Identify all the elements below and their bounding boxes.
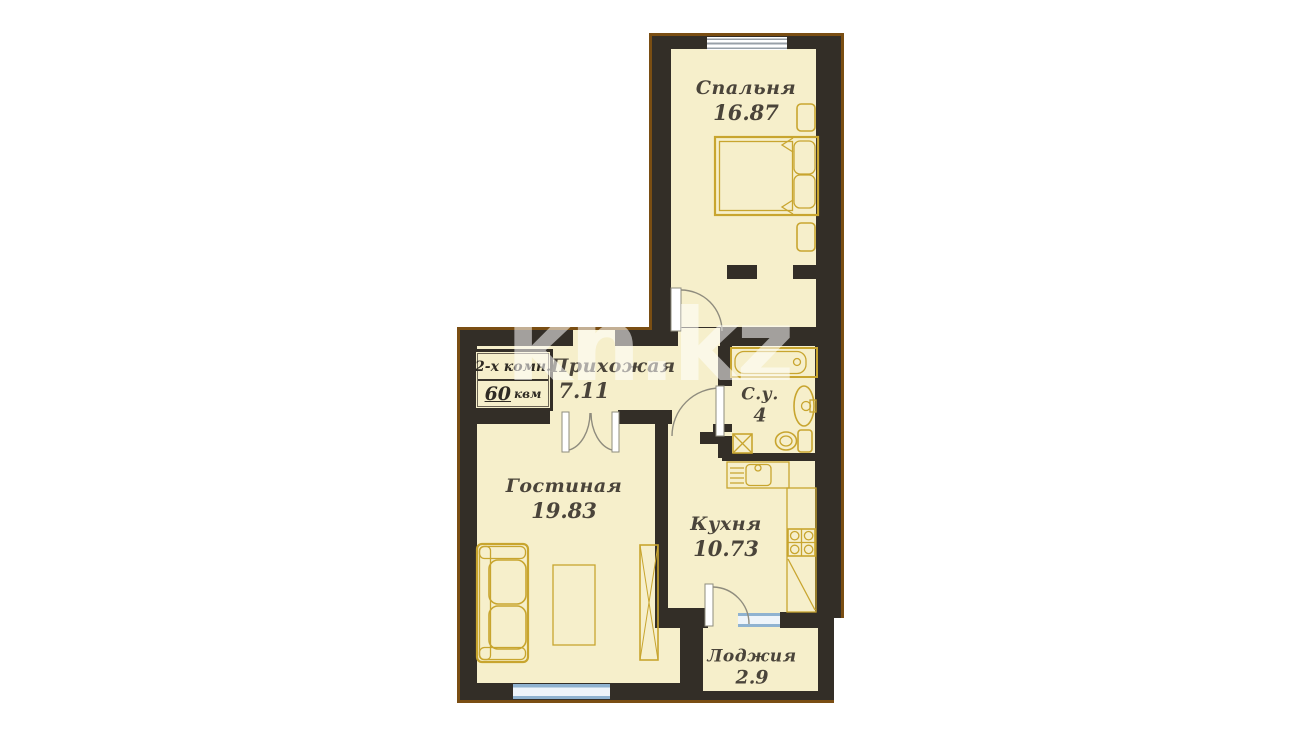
nightstand-bottom bbox=[797, 223, 815, 251]
kitchen-dish-rack bbox=[730, 468, 744, 483]
loggia-name: Лоджия bbox=[707, 646, 796, 666]
wardrobe-cross bbox=[640, 545, 658, 660]
french-door-arc-right bbox=[591, 413, 612, 450]
apartment-area-unit: квм bbox=[514, 387, 541, 401]
bathroom-door-leaf bbox=[716, 386, 724, 436]
bed-pillow-bottom bbox=[794, 175, 815, 208]
apartment-area-label: 60 квм bbox=[478, 381, 548, 406]
blanket-fold-bottom bbox=[782, 200, 793, 214]
bathroom-door-arc bbox=[672, 388, 720, 436]
burner-2 bbox=[804, 532, 812, 540]
burner-1 bbox=[791, 532, 799, 540]
bedroom-name: Спальня bbox=[696, 77, 796, 100]
kitchen-name: Кухня bbox=[690, 513, 761, 536]
coffee-table bbox=[553, 565, 595, 645]
hallway-area: 7.11 bbox=[550, 378, 675, 403]
kitchen-counter-top bbox=[727, 462, 789, 488]
hallway-name: Прихожая bbox=[550, 355, 675, 378]
bed-mattress bbox=[720, 142, 793, 211]
bedroom-area: 16.87 bbox=[696, 100, 796, 125]
kitchen-area: 10.73 bbox=[690, 536, 761, 561]
blanket-fold-top bbox=[782, 138, 793, 152]
corner-cabinet-diagonal bbox=[788, 559, 815, 610]
bathtub bbox=[731, 348, 817, 377]
loggia-door-arc bbox=[713, 587, 749, 624]
living-area: 19.83 bbox=[506, 498, 623, 523]
nightstand-top bbox=[797, 104, 815, 131]
french-door-leaf-left bbox=[562, 412, 569, 452]
bed-pillow-top bbox=[794, 141, 815, 174]
label-bathroom: С.у. 4 bbox=[741, 384, 779, 427]
kitchen-sink bbox=[746, 465, 771, 486]
bathtub-drain bbox=[794, 359, 801, 366]
apartment-info-badge: 2-х комн. 60 квм bbox=[473, 349, 553, 411]
washing-machine-cross bbox=[733, 434, 752, 453]
sofa-armrest-top bbox=[480, 547, 526, 559]
burner-3 bbox=[791, 545, 799, 553]
bedroom-door-arc bbox=[681, 290, 722, 331]
sofa-cushion-bottom bbox=[489, 606, 526, 649]
floor-plan: 2-х комн. 60 квм Спальня 16.87 Прихожая … bbox=[0, 0, 1296, 730]
burner-4 bbox=[804, 545, 812, 553]
bathroom-name: С.у. bbox=[741, 384, 779, 404]
label-loggia: Лоджия 2.9 bbox=[707, 646, 796, 689]
toilet-bowl bbox=[776, 432, 797, 450]
sofa-cushion-top bbox=[489, 560, 526, 604]
badge-inner-frame: 2-х комн. 60 квм bbox=[477, 353, 549, 407]
label-hallway: Прихожая 7.11 bbox=[550, 355, 675, 403]
apartment-type-label: 2-х комн. bbox=[478, 354, 548, 381]
living-name: Гостиная bbox=[506, 475, 623, 498]
french-door-leaf-right bbox=[612, 412, 619, 452]
french-door-arc-left bbox=[569, 413, 590, 450]
bathtub-inner bbox=[735, 352, 806, 374]
loggia-door-leaf bbox=[705, 584, 713, 626]
label-kitchen: Кухня 10.73 bbox=[690, 513, 761, 561]
kitchen-faucet bbox=[755, 465, 761, 471]
bathroom-area: 4 bbox=[741, 405, 779, 428]
toilet-tank bbox=[798, 430, 812, 452]
apartment-area-value: 60 bbox=[485, 383, 511, 405]
label-living: Гостиная 19.83 bbox=[506, 475, 623, 523]
loggia-area: 2.9 bbox=[707, 667, 796, 690]
toilet-bowl-inner bbox=[780, 436, 792, 446]
label-bedroom: Спальня 16.87 bbox=[696, 77, 796, 125]
bedroom-door-leaf bbox=[671, 288, 681, 331]
bed bbox=[715, 137, 818, 215]
bath-sink-bowl bbox=[802, 402, 811, 411]
